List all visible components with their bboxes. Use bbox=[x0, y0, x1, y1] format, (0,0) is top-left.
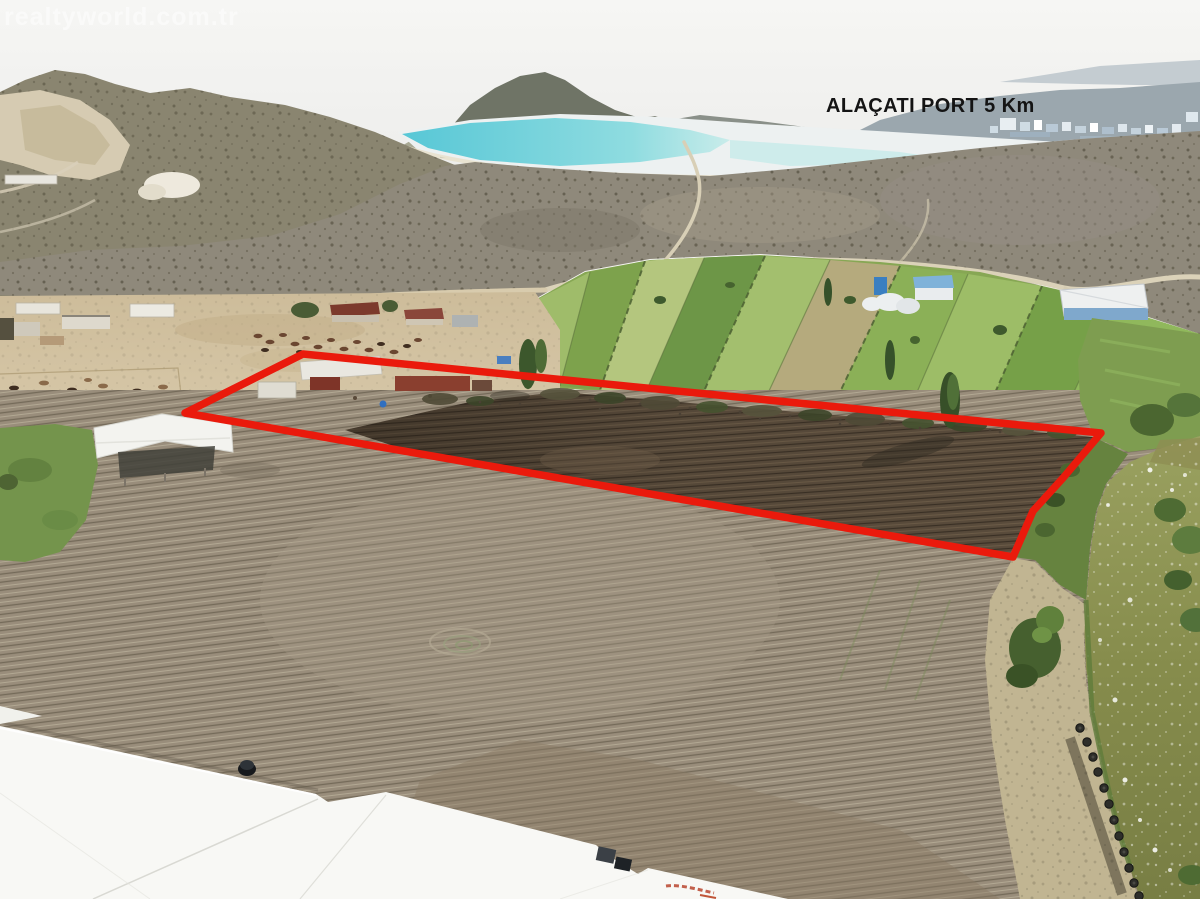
blue-barrel bbox=[380, 401, 387, 408]
port-distance-label: ALAÇATI PORT 5 Km bbox=[826, 95, 1035, 118]
aerial-photo-canvas bbox=[0, 0, 1200, 899]
aerial-photo: realtyworld.com.tr ALAÇATI PORT 5 Km bbox=[0, 0, 1200, 899]
watermark: realtyworld.com.tr bbox=[4, 3, 239, 32]
